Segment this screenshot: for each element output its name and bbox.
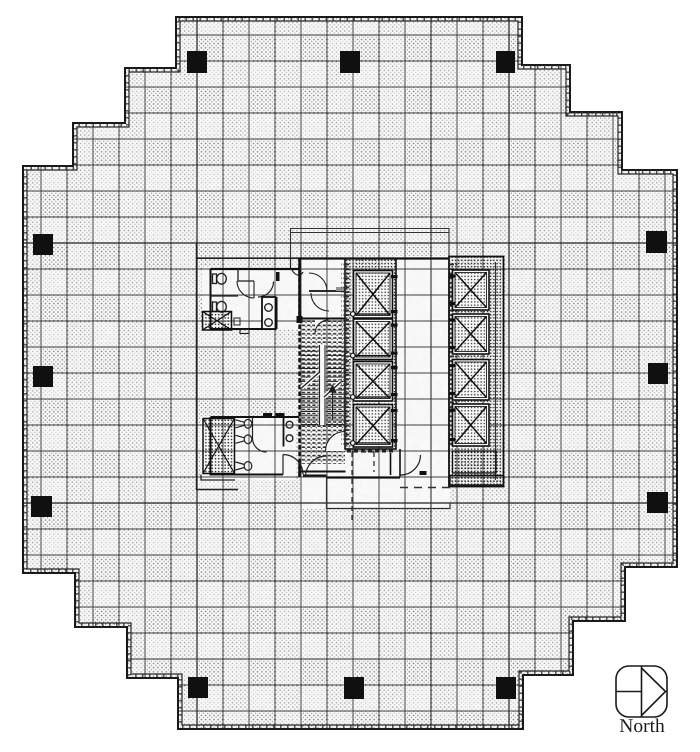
svg-text:North: North: [619, 716, 665, 737]
